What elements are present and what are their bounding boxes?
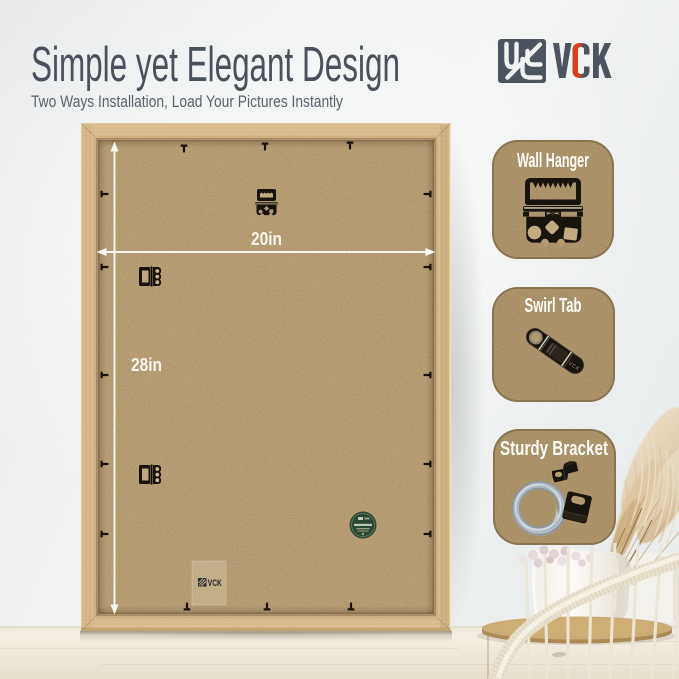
svg-text:Swirl Tab: Swirl Tab (525, 295, 582, 317)
svg-text:20in: 20in (251, 229, 282, 249)
svg-text:Sturdy Bracket: Sturdy Bracket (500, 438, 608, 460)
svg-text:Wall Hanger: Wall Hanger (517, 150, 589, 172)
svg-text:28in: 28in (131, 355, 162, 375)
svg-text:VCK: VCK (546, 211, 561, 216)
svg-text:VCK: VCK (208, 578, 222, 588)
